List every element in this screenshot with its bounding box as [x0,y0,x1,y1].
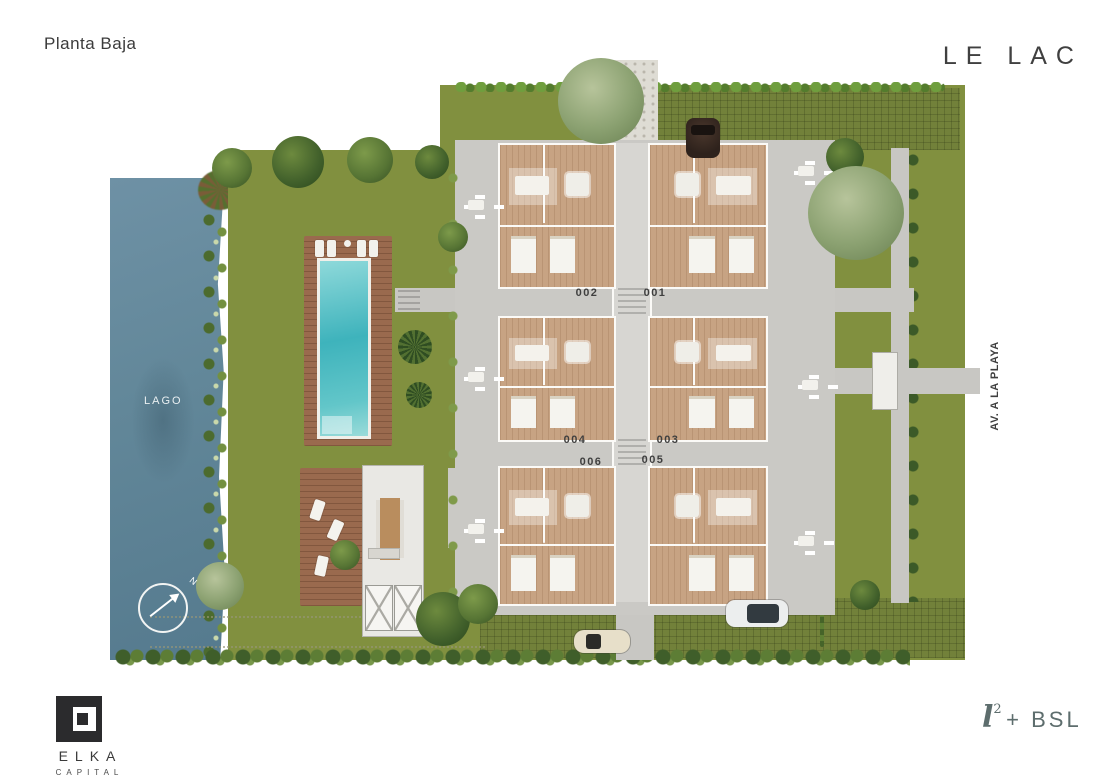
unit-furniture [500,318,614,440]
unit-furniture [650,318,766,440]
patio-furniture-set [802,380,818,390]
unit-label-002: 002 [576,287,599,299]
unit-002-plan[interactable] [498,143,616,289]
stair-core [618,288,646,314]
north-compass-icon: N [138,583,188,633]
unit-005-plan[interactable] [648,466,768,606]
elka-logo-inner-square [77,713,88,725]
central-core [612,143,652,602]
pool-lounger [327,240,336,257]
patio-furniture-set [468,372,484,382]
tree [212,148,252,188]
hedge-north-east [650,82,945,92]
tree [347,137,393,183]
unit-006-plan[interactable] [498,466,616,606]
elka-logo-name: ELKA [40,748,134,764]
unit-furniture [500,468,614,604]
lake-shade [118,330,208,510]
pool-lounger [369,240,378,257]
street-label: AV. A LA PLAYA [989,321,1001,451]
unit-label-006: 006 [580,456,603,468]
hedge-south [115,648,910,666]
elka-logo-subtitle: CAPITAL [40,768,134,777]
parked-car-dark [686,118,720,158]
tree [415,145,449,179]
lake-label: LAGO [144,395,183,407]
pool-house-counter [368,548,400,559]
unit-furniture [500,145,614,287]
tree [438,222,468,252]
swimming-pool [317,258,371,439]
partner-mark: l2 + BSL [982,700,1082,735]
large-tree [558,58,644,144]
partner-mark-sup: 2 [993,702,1001,717]
parked-car-white [726,600,788,627]
project-logo-text: LE LAC [938,42,1083,71]
pool-lounger [315,240,324,257]
tree [272,136,324,188]
unit-label-005: 005 [642,454,665,466]
elka-logo-window [73,707,96,731]
pool-lounger [357,240,366,257]
unit-furniture [650,145,766,287]
large-tree [808,166,904,260]
patio-furniture-set [468,524,484,534]
gate-structure-east [872,352,898,410]
unit-label-003: 003 [657,434,680,446]
unit-001-plan[interactable] [648,143,768,289]
shrub [330,540,360,570]
patio-furniture-set [798,536,814,546]
patio-furniture-set [468,200,484,210]
patio-furniture-set [798,166,814,176]
shrub [850,580,880,610]
unit-004-plan[interactable] [498,316,616,442]
partner-mark-rest: + BSL [1006,707,1082,732]
unit-003-plan[interactable] [648,316,768,442]
partner-mark-l: l [982,700,993,735]
deck-side-table [344,240,351,247]
pergola-panel [365,585,393,631]
unit-furniture [650,468,766,604]
unit-label-004: 004 [564,434,587,446]
compass-needle [150,597,175,617]
unit-label-001: 001 [644,287,667,299]
stairs-west [398,290,420,310]
page-title: Planta Baja [44,34,136,54]
tree [458,584,498,624]
tree [196,562,244,610]
parked-car-cream [574,630,630,653]
palm-tree [406,382,432,408]
elka-logo-icon [56,696,102,742]
palm-tree [398,330,432,364]
